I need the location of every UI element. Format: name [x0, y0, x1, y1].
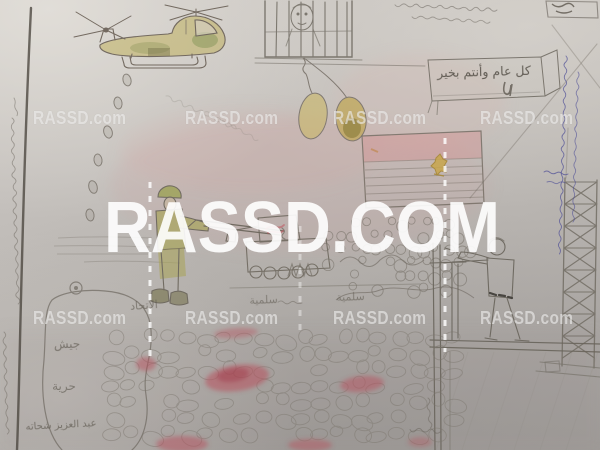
watermark-large: RASSD.COM [104, 192, 500, 264]
watermark-small-4: RASSD.com [480, 108, 573, 129]
greeting-banner-text: كل عام وأنتم بخير [426, 62, 542, 80]
watermark-small-3: RASSD.com [333, 108, 426, 129]
watermark-small-8: RASSD.com [480, 308, 573, 329]
watermark-small-6: RASSD.com [185, 308, 278, 329]
watermark-small-2: RASSD.com [185, 108, 278, 129]
bubble-word-2: حرية [38, 379, 90, 393]
photo-of-childs-drawing: كل عام وأنتم بخير سلمية سلمية الاتحاد جي… [0, 0, 600, 450]
corner-box-sketch [546, 1, 598, 18]
watermark-small-5: RASSD.com [33, 308, 126, 329]
prisoner-face-sketch [286, 4, 320, 46]
helicopter-sketch [74, 5, 228, 68]
bubble-word-1: جيش [42, 336, 92, 352]
watermark-small-7: RASSD.com [333, 308, 426, 329]
watermark-small-1: RASSD.com [33, 108, 126, 129]
